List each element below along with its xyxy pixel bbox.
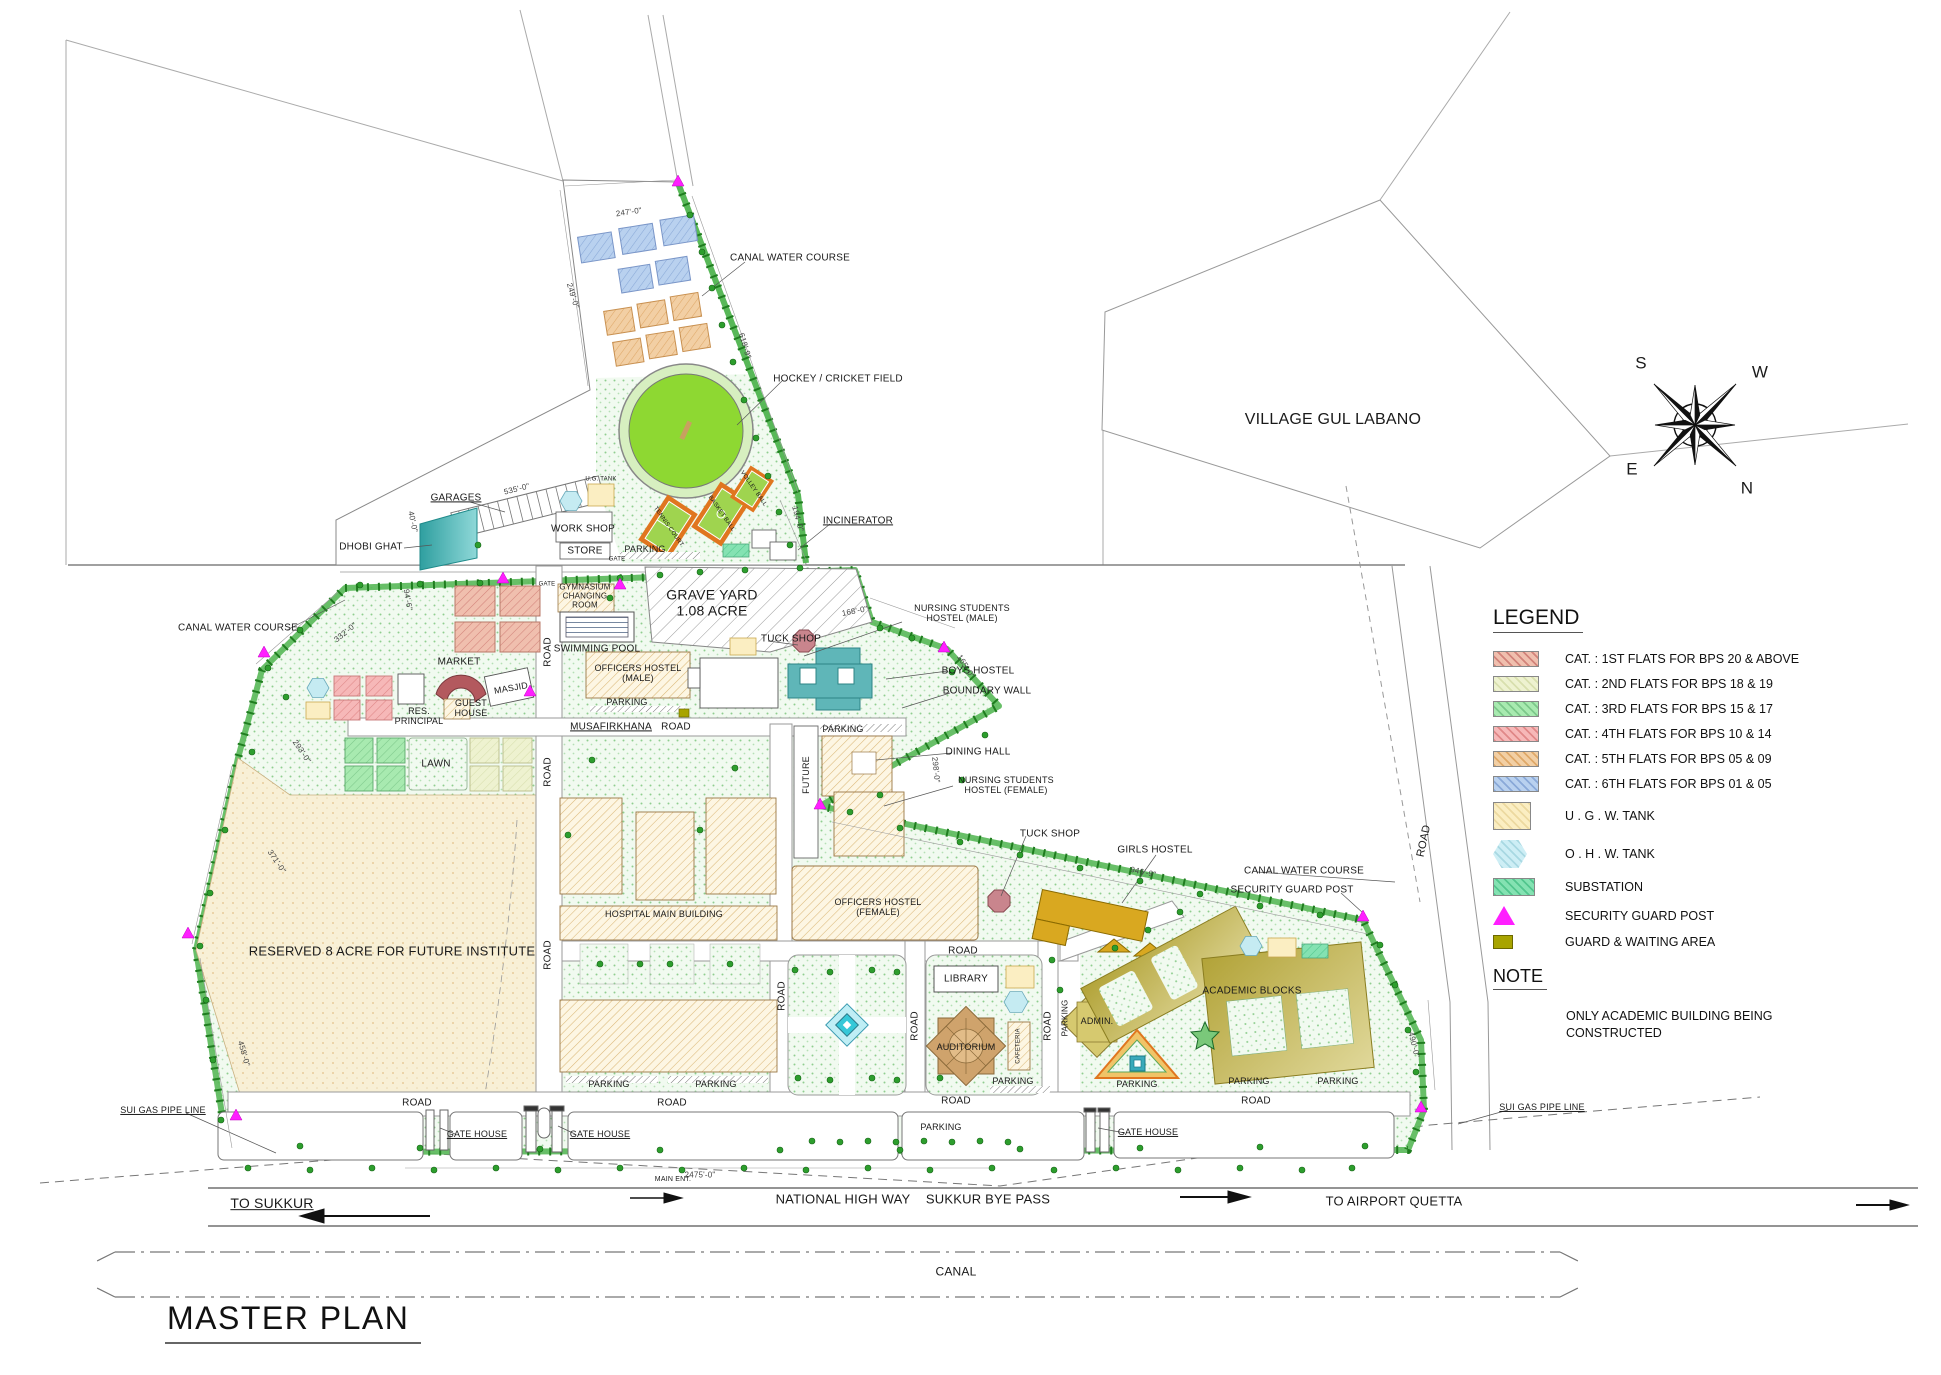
tree-icon — [792, 967, 798, 973]
tree-icon — [865, 1165, 871, 1171]
tree-icon — [719, 322, 725, 328]
tree-icon — [894, 1077, 900, 1083]
tree-icon — [1177, 909, 1183, 915]
tree-icon — [687, 212, 693, 218]
legend-panel: LEGEND CAT. : 1ST FLATS FOR BPS 20 & ABO… — [1493, 606, 1923, 958]
tree-icon — [597, 961, 603, 967]
bottom-parking-strips — [218, 1112, 1394, 1160]
ug-tank-workshop — [588, 484, 614, 506]
future-plot — [794, 726, 818, 858]
parking-ticks-future — [820, 724, 902, 732]
tree-icon — [699, 249, 705, 255]
tree-icon — [297, 1143, 303, 1149]
gymnasium — [558, 584, 614, 612]
tree-icon — [1005, 1139, 1011, 1145]
tree-icon — [795, 1075, 801, 1081]
highway-lines — [208, 1188, 1918, 1226]
cat-4th-swatch-icon — [1493, 726, 1539, 742]
legend-item-cat-4th: CAT. : 4TH FLATS FOR BPS 10 & 14 — [1493, 726, 1923, 742]
nursing-male-hostel — [700, 658, 778, 708]
tree-icon — [1057, 987, 1063, 993]
tree-icon — [827, 969, 833, 975]
legend-item-cat-1st: CAT. : 1ST FLATS FOR BPS 20 & ABOVE — [1493, 651, 1923, 667]
legend-item-label: CAT. : 6TH FLATS FOR BPS 01 & 05 — [1565, 777, 1772, 791]
substation-swatch-icon — [1493, 878, 1535, 896]
tree-icon — [977, 1138, 983, 1144]
page-title: MASTER PLAN — [165, 1300, 421, 1344]
tree-icon — [897, 825, 903, 831]
tree-icon — [982, 732, 988, 738]
legend-item-label: CAT. : 5TH FLATS FOR BPS 05 & 09 — [1565, 752, 1772, 766]
tree-icon — [949, 669, 955, 675]
tree-icon — [732, 765, 738, 771]
parking-ticks-hosp2 — [668, 1076, 768, 1083]
substation-courts — [723, 544, 749, 557]
master-plan-sheet: CANAL WATER COURSEHOCKEY / CRICKET FIELD… — [0, 0, 1941, 1375]
legend-item-cat-2nd: CAT. : 2ND FLATS FOR BPS 18 & 19 — [1493, 676, 1923, 692]
tree-icon — [218, 1117, 224, 1123]
canal-lines — [95, 1252, 1580, 1297]
legend-item-cat-3rd: CAT. : 3RD FLATS FOR BPS 15 & 17 — [1493, 701, 1923, 717]
tree-icon — [1017, 1146, 1023, 1152]
triangle-fountain-core — [1134, 1060, 1141, 1067]
tree-icon — [797, 565, 803, 571]
tree-icon — [417, 581, 423, 587]
auditorium — [926, 1006, 1005, 1085]
tuck-shop-1 — [793, 630, 815, 652]
tree-icon — [1257, 903, 1263, 909]
tree-icon — [827, 1077, 833, 1083]
swimming-pool-water — [566, 617, 628, 637]
tree-icon — [1405, 1027, 1411, 1033]
tree-icon — [283, 694, 289, 700]
parking-ticks-hosp1 — [566, 1076, 658, 1083]
legend-item-label: U . G . W. TANK — [1565, 809, 1655, 823]
tree-icon — [222, 827, 228, 833]
tree-icon — [837, 1139, 843, 1145]
tree-icon — [949, 1139, 955, 1145]
tree-icon — [742, 567, 748, 573]
res-principal — [398, 674, 424, 704]
security-guard-post-swatch-icon — [1493, 906, 1515, 925]
tree-icon — [697, 827, 703, 833]
tree-icon — [607, 595, 613, 601]
ugw-tank-academic — [1268, 938, 1296, 957]
cat-2nd-swatch-icon — [1493, 676, 1539, 692]
legend-item-ugw-tank: U . G . W. TANK — [1493, 802, 1923, 830]
tree-icon — [697, 569, 703, 575]
tree-icon — [565, 832, 571, 838]
compass-rose-icon — [1654, 384, 1736, 466]
tree-icon — [787, 542, 793, 548]
note-panel: NOTE ONLY ACADEMIC BUILDING BEING CONSTR… — [1493, 966, 1923, 990]
tree-icon — [989, 1165, 995, 1171]
legend-item-label: CAT. : 3RD FLATS FOR BPS 15 & 17 — [1565, 702, 1773, 716]
tree-icon — [809, 1138, 815, 1144]
survey-lines — [66, 10, 1908, 565]
tree-icon — [957, 839, 963, 845]
tree-icon — [709, 285, 715, 291]
tree-icon — [1017, 852, 1023, 858]
cat-3rd-swatch-icon — [1493, 701, 1539, 717]
tree-icon — [1317, 912, 1323, 918]
legend-item-security-guard-post: SECURITY GUARD POST — [1493, 906, 1923, 925]
library — [934, 966, 998, 992]
tree-icon — [1413, 1069, 1419, 1075]
tree-icon — [197, 943, 203, 949]
tree-icon — [1392, 982, 1398, 988]
reserved-area — [196, 758, 536, 1094]
ugw-tank-market — [306, 702, 330, 719]
tree-icon — [921, 1138, 927, 1144]
direction-arrows — [300, 1191, 1908, 1223]
ugw-tank-library — [1006, 966, 1034, 988]
tree-icon — [1175, 1167, 1181, 1173]
village-parcel — [1102, 200, 1610, 548]
dining-court — [852, 752, 876, 774]
cat-1st-swatch-icon — [1493, 651, 1539, 667]
tree-icon — [1377, 942, 1383, 948]
legend-item-cat-5th: CAT. : 5TH FLATS FOR BPS 05 & 09 — [1493, 751, 1923, 767]
ohw-tank-swatch-icon — [1493, 840, 1527, 868]
tree-icon — [1051, 1167, 1057, 1173]
tree-icon — [1197, 891, 1203, 897]
tree-icon — [897, 1147, 903, 1153]
work-shop — [556, 512, 612, 542]
tree-icon — [617, 1165, 623, 1171]
tree-icon — [1237, 1165, 1243, 1171]
legend-item-label: CAT. : 1ST FLATS FOR BPS 20 & ABOVE — [1565, 652, 1799, 666]
legend-item-label: GUARD & WAITING AREA — [1565, 935, 1715, 949]
security-guard-post-icon — [1357, 910, 1369, 921]
tree-icon — [937, 1075, 943, 1081]
parking-ticks-ohm — [590, 706, 685, 712]
tree-icon — [776, 509, 782, 515]
tree-icon — [357, 582, 363, 588]
tree-icon — [369, 1165, 375, 1171]
legend-item-label: SUBSTATION — [1565, 880, 1643, 894]
tree-icon — [265, 665, 271, 671]
officers-hostel-male — [586, 652, 690, 698]
legend-item-label: SECURITY GUARD POST — [1565, 909, 1714, 923]
note-text: ONLY ACADEMIC BUILDING BEING CONSTRUCTED — [1566, 1008, 1816, 1042]
tuck-shop-2 — [988, 890, 1010, 912]
tree-icon — [207, 890, 213, 896]
nursing-male-wing — [688, 668, 700, 688]
tree-icon — [537, 1146, 543, 1152]
tree-icon — [894, 969, 900, 975]
tree-icon — [1049, 957, 1055, 963]
tree-icon — [667, 961, 673, 967]
note-heading: NOTE — [1493, 966, 1547, 990]
tree-icon — [307, 1167, 313, 1173]
cat-5th-swatch-icon — [1493, 751, 1539, 767]
tree-icon — [589, 757, 595, 763]
tree-icon — [637, 961, 643, 967]
guard-waiting-area-icon — [679, 709, 689, 717]
tree-icon — [245, 1165, 251, 1171]
cafeteria — [1008, 1022, 1030, 1070]
tree-icon — [477, 580, 483, 586]
ugw-tank-boys — [730, 638, 756, 655]
tree-icon — [1112, 945, 1118, 951]
tree-icon — [431, 1167, 437, 1173]
tree-icon — [753, 435, 759, 441]
academic-main-block — [1202, 942, 1374, 1084]
tree-icon — [741, 397, 747, 403]
hospital-main-building — [560, 798, 777, 1072]
security-guard-post-icon — [672, 175, 684, 186]
tree-icon — [475, 542, 481, 548]
guard-waiting-area-swatch-icon — [1493, 935, 1513, 949]
legend-item-label: CAT. : 2ND FLATS FOR BPS 18 & 19 — [1565, 677, 1773, 691]
tree-icon — [741, 1165, 747, 1171]
legend-item-label: O . H . W. TANK — [1565, 847, 1655, 861]
tree-icon — [1077, 865, 1083, 871]
tree-icon — [1362, 1143, 1368, 1149]
tree-icon — [210, 1057, 216, 1063]
security-guard-post-icon — [497, 572, 509, 583]
security-guard-post-icon — [182, 927, 194, 938]
tree-icon — [865, 1138, 871, 1144]
tree-icon — [777, 1147, 783, 1153]
legend-item-ohw-tank: O . H . W. TANK — [1493, 840, 1923, 868]
parking-ticks-aud — [990, 1086, 1050, 1093]
legend-items: CAT. : 1ST FLATS FOR BPS 20 & ABOVECAT. … — [1493, 651, 1923, 949]
tree-icon — [803, 1167, 809, 1173]
tree-icon — [730, 359, 736, 365]
tree-icon — [909, 635, 915, 641]
officers-hostel-female — [792, 866, 978, 940]
guest-house — [444, 699, 470, 719]
tree-icon — [1257, 1144, 1263, 1150]
tree-icon — [203, 997, 209, 1003]
tree-icon — [847, 809, 853, 815]
legend-item-guard-waiting-area: GUARD & WAITING AREA — [1493, 935, 1923, 949]
tree-icon — [959, 777, 965, 783]
tree-icon — [869, 1075, 875, 1081]
tree-icon — [417, 1145, 423, 1151]
tree-icon — [555, 1167, 561, 1173]
tree-icon — [893, 1139, 899, 1145]
security-guard-post-icon — [258, 646, 270, 657]
tree-icon — [869, 967, 875, 973]
tree-icon — [1349, 1165, 1355, 1171]
tree-icon — [1299, 1167, 1305, 1173]
tree-icon — [1113, 1165, 1119, 1171]
tree-icon — [765, 473, 771, 479]
cat-6th-swatch-icon — [1493, 776, 1539, 792]
tree-icon — [657, 1147, 663, 1153]
legend-heading: LEGEND — [1493, 606, 1583, 633]
tree-icon — [1145, 927, 1151, 933]
tree-icon — [1137, 1145, 1143, 1151]
parking-ticks-courts — [620, 552, 700, 559]
tree-icon — [727, 961, 733, 967]
substation-academic — [1302, 944, 1328, 958]
tree-icon — [877, 792, 883, 798]
nursing-female-hostel — [834, 792, 904, 856]
tree-icon — [927, 1167, 933, 1173]
tree-icon — [657, 572, 663, 578]
lawn — [409, 738, 467, 790]
legend-item-label: CAT. : 4TH FLATS FOR BPS 10 & 14 — [1565, 727, 1772, 741]
tree-icon — [679, 1167, 685, 1173]
tree-icon — [877, 625, 883, 631]
legend-item-substation: SUBSTATION — [1493, 878, 1923, 896]
store — [560, 543, 610, 559]
tree-icon — [1137, 878, 1143, 884]
tree-icon — [493, 1165, 499, 1171]
tree-icon — [249, 749, 255, 755]
tree-icon — [297, 627, 303, 633]
legend-item-cat-6th: CAT. : 6TH FLATS FOR BPS 01 & 05 — [1493, 776, 1923, 792]
ugw-tank-swatch-icon — [1493, 802, 1531, 830]
